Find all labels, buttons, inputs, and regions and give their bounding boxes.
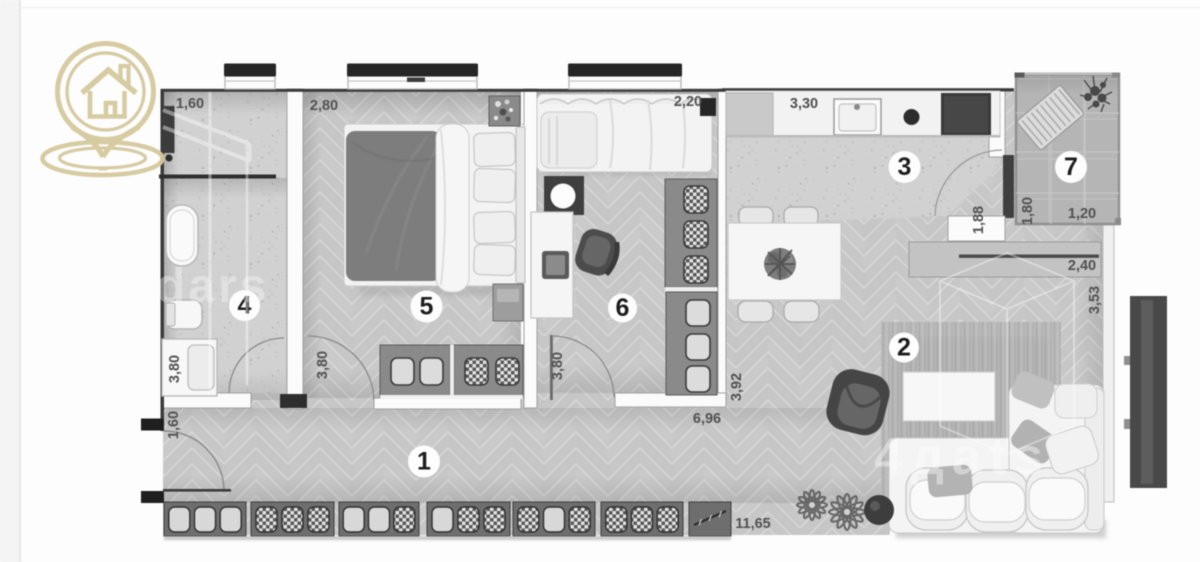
svg-text:1,88: 1,88 (971, 206, 987, 234)
svg-text:3: 3 (898, 153, 912, 181)
svg-text:3,80: 3,80 (167, 355, 183, 383)
svg-text:1,20: 1,20 (1068, 206, 1096, 222)
svg-text:7: 7 (1064, 153, 1078, 181)
svg-text:3,80: 3,80 (315, 351, 331, 379)
svg-text:2,80: 2,80 (310, 98, 338, 114)
svg-text:dars: dars (156, 260, 269, 313)
svg-text:3,30: 3,30 (790, 96, 818, 112)
svg-text:2: 2 (897, 334, 911, 362)
svg-text:3,80: 3,80 (550, 352, 566, 380)
svg-text:4дats: 4дats (874, 428, 1051, 486)
svg-text:2,20: 2,20 (674, 94, 702, 110)
svg-text:6,96: 6,96 (693, 411, 721, 427)
svg-text:1,60: 1,60 (176, 96, 204, 112)
svg-text:11,65: 11,65 (735, 516, 771, 532)
svg-text:1,60: 1,60 (166, 411, 182, 439)
svg-text:5: 5 (420, 293, 434, 321)
svg-text:2,40: 2,40 (1068, 258, 1096, 274)
svg-text:6: 6 (616, 294, 630, 322)
svg-text:3,53: 3,53 (1087, 286, 1103, 314)
svg-text:3,92: 3,92 (729, 373, 745, 401)
svg-text:1,80: 1,80 (1020, 197, 1036, 225)
svg-text:1: 1 (417, 448, 431, 476)
